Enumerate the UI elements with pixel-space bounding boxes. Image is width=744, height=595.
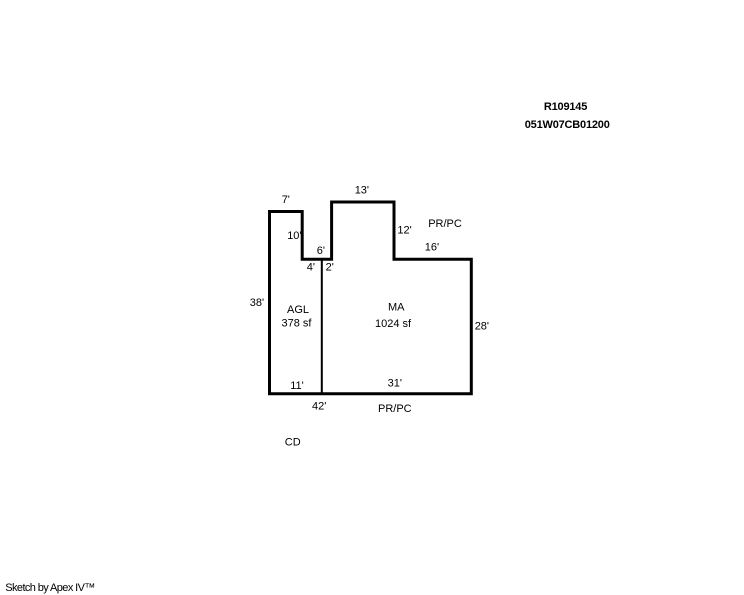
svg-text:12': 12' xyxy=(397,225,411,237)
svg-text:16': 16' xyxy=(425,241,439,253)
svg-text:051W07CB01200: 051W07CB01200 xyxy=(525,119,610,131)
svg-text:R109145: R109145 xyxy=(544,101,587,113)
svg-text:10': 10' xyxy=(287,230,301,242)
svg-text:6': 6' xyxy=(317,245,325,257)
svg-text:CD: CD xyxy=(285,437,301,449)
svg-text:AGL: AGL xyxy=(287,304,309,316)
svg-text:31': 31' xyxy=(388,378,402,390)
svg-text:13': 13' xyxy=(355,185,369,197)
svg-text:MA: MA xyxy=(388,302,405,314)
svg-text:378 sf: 378 sf xyxy=(282,318,313,330)
svg-text:28': 28' xyxy=(475,321,489,333)
svg-text:11': 11' xyxy=(290,380,304,392)
svg-text:38': 38' xyxy=(250,297,264,309)
svg-text:4': 4' xyxy=(307,262,315,274)
svg-text:2': 2' xyxy=(326,262,334,274)
svg-text:Sketch by Apex IV™: Sketch by Apex IV™ xyxy=(5,582,94,594)
svg-text:42': 42' xyxy=(312,401,326,413)
svg-text:7': 7' xyxy=(282,194,290,206)
svg-text:PR/PC: PR/PC xyxy=(378,403,412,415)
svg-text:1024 sf: 1024 sf xyxy=(375,318,412,330)
svg-text:PR/PC: PR/PC xyxy=(428,218,462,230)
